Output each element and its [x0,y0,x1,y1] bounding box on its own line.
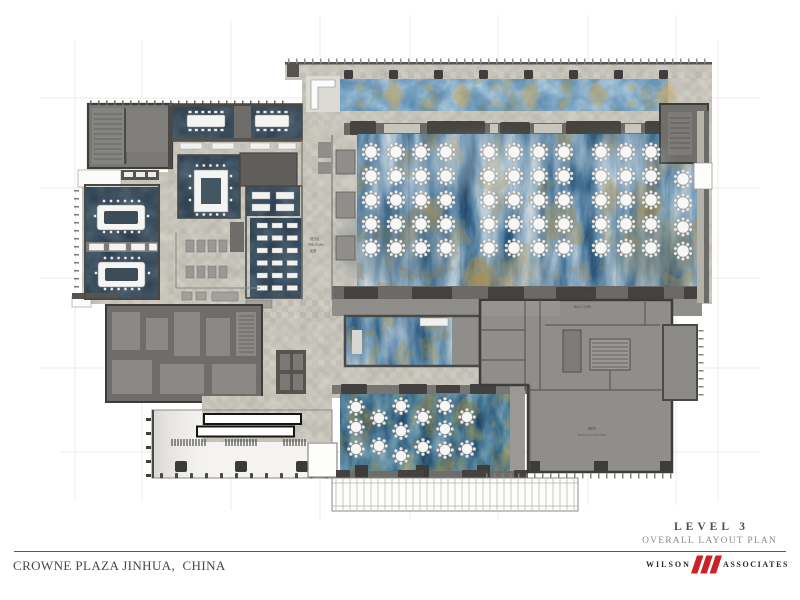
svg-text:B/O: B/O [588,426,596,431]
svg-text:BANQUET KITCHEN: BANQUET KITCHEN [578,433,606,437]
svg-text:走廊: 走廊 [310,248,317,253]
svg-text:B/O CORE: B/O CORE [574,305,592,309]
svg-text:前厅区: 前厅区 [310,236,320,241]
svg-text:宴会厅: 宴会厅 [586,292,596,297]
svg-text:PRE-FUNC: PRE-FUNC [308,243,325,247]
